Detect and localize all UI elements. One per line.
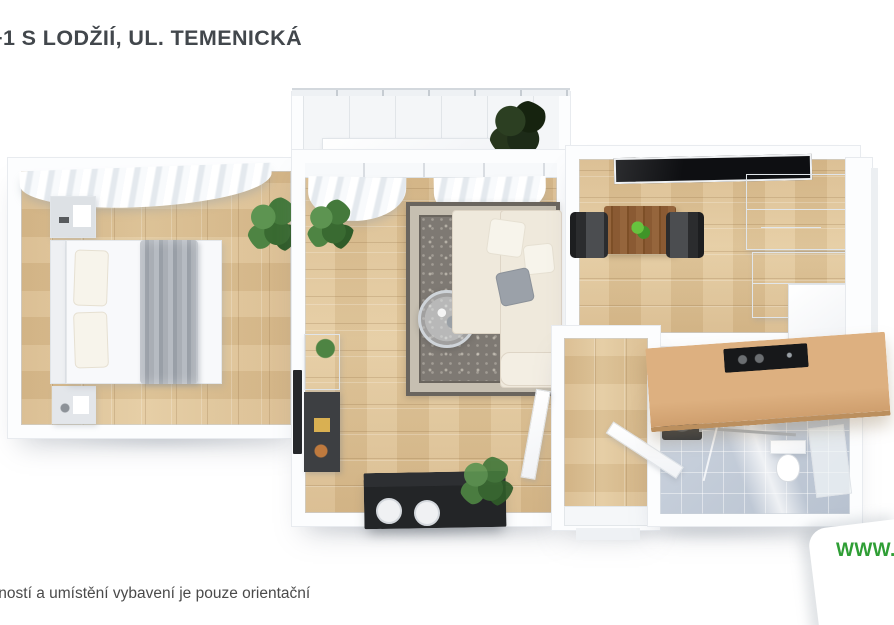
tv <box>293 370 302 454</box>
kitchen-right-wall-shadow <box>871 168 878 352</box>
floorplan-screenshot: +1 S LODŽIÍ, UL. TEMENICKÁ tností a umís… <box>0 0 894 625</box>
sofa-pillow-gray <box>495 267 535 307</box>
bed-blanket <box>140 240 198 384</box>
kitchen-right-wall <box>846 158 872 358</box>
dining-chair-right <box>666 212 704 258</box>
entrance-step <box>576 528 640 540</box>
console-knob-left <box>376 498 402 524</box>
room-hallway <box>552 326 660 530</box>
wall-shelf <box>304 334 340 390</box>
disclaimer-text: tností a umístění vybavení je pouze orie… <box>0 585 310 603</box>
bed-pillow-top <box>73 249 109 306</box>
kitchen-cabinet-upper <box>746 174 848 250</box>
bed-pillow-bottom <box>73 311 109 368</box>
console-fern-plant <box>458 456 514 508</box>
sofa-pillow-white-1 <box>486 218 527 259</box>
watermark-url: WWW.N <box>836 540 894 562</box>
page-title: +1 S LODŽIÍ, UL. TEMENICKÁ <box>0 26 302 51</box>
watermark-box <box>807 519 894 625</box>
tv-cabinet <box>304 392 340 472</box>
nightstand-top <box>50 196 96 238</box>
balcony-railing <box>292 88 570 96</box>
console-knob-right <box>414 500 440 526</box>
livingroom-plant <box>306 198 354 252</box>
bed-headboard <box>50 240 66 384</box>
toilet-bowl <box>776 454 800 482</box>
toilet-tank <box>770 440 806 454</box>
entrance-threshold <box>564 506 648 526</box>
dining-table-plant <box>628 218 652 242</box>
nightstand-bottom <box>52 386 96 424</box>
watermark-www: WWW. <box>836 540 894 561</box>
dining-chair-left <box>570 212 608 258</box>
